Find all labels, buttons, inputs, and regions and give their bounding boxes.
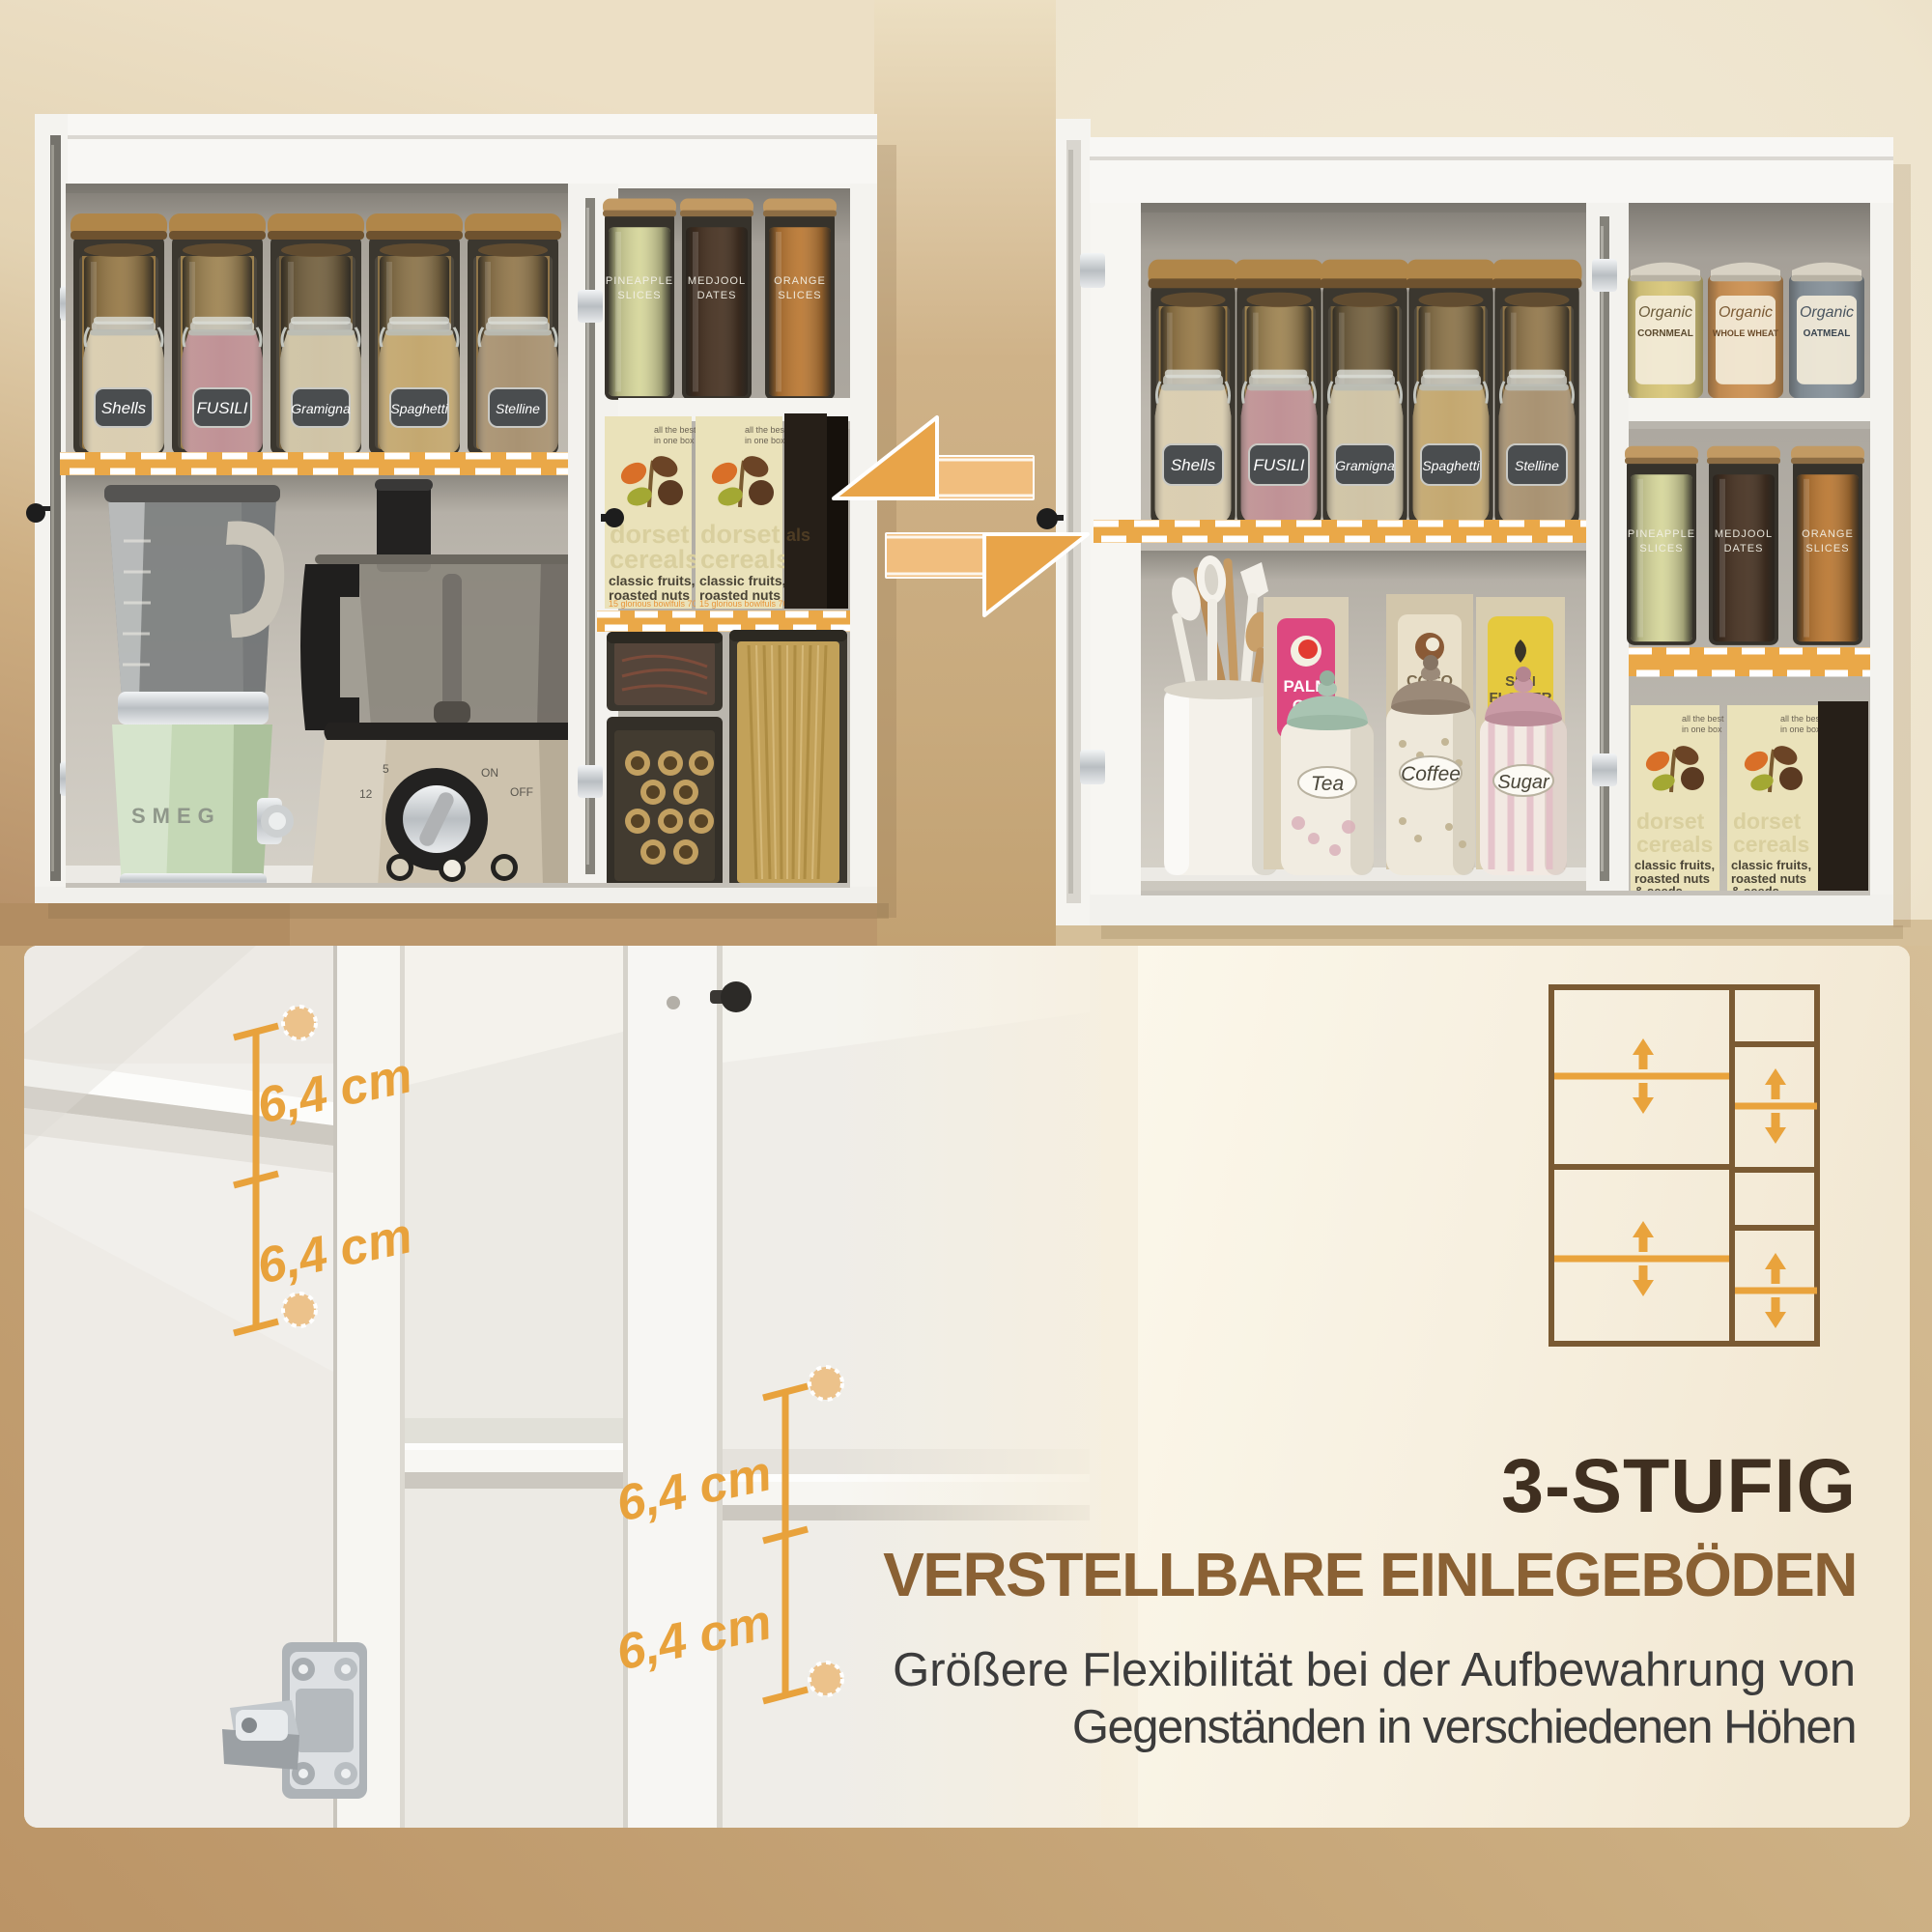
svg-text:in one box: in one box (1780, 724, 1821, 734)
svg-text:ORANGE: ORANGE (1802, 528, 1854, 540)
svg-text:VERSTELLBARE EINLEGEBÖDEN: VERSTELLBARE EINLEGEBÖDEN (883, 1540, 1857, 1609)
svg-text:classic fruits,: classic fruits, (1731, 858, 1811, 872)
svg-text:15 glorious bowlfuls 700g: 15 glorious bowlfuls 700g (609, 599, 707, 609)
svg-text:CORNMEAL: CORNMEAL (1637, 328, 1693, 339)
svg-text:3-STUFIG: 3-STUFIG (1501, 1442, 1857, 1528)
svg-text:all the best: all the best (745, 425, 787, 435)
svg-text:in one box: in one box (1682, 724, 1722, 734)
svg-text:classic fruits,: classic fruits, (609, 573, 696, 588)
svg-text:cereals: cereals (1636, 832, 1713, 857)
svg-text:5: 5 (383, 762, 389, 776)
svg-text:Gramigna: Gramigna (291, 401, 351, 416)
svg-text:ORANGE: ORANGE (774, 275, 826, 287)
svg-text:15 glorious bowlfuls 700g: 15 glorious bowlfuls 700g (699, 599, 798, 609)
svg-text:dorset: dorset (1636, 809, 1705, 834)
svg-text:Sugar: Sugar (1497, 772, 1550, 793)
svg-text:Größere Flexibilität bei der A: Größere Flexibilität bei der Aufbewahrun… (893, 1644, 1856, 1696)
svg-text:OFF: OFF (510, 785, 533, 799)
svg-text:Spaghetti: Spaghetti (1422, 458, 1480, 473)
svg-text:classic fruits,: classic fruits, (1634, 858, 1715, 872)
svg-text:Gramigna: Gramigna (1335, 458, 1395, 473)
svg-text:in one box: in one box (745, 436, 785, 445)
svg-text:PINEAPPLE: PINEAPPLE (1628, 528, 1695, 540)
svg-text:Stelline: Stelline (1515, 458, 1559, 473)
svg-text:PINEAPPLE: PINEAPPLE (606, 275, 673, 287)
svg-text:FUSILI: FUSILI (197, 399, 248, 417)
svg-text:ON: ON (481, 766, 498, 780)
svg-text:dorset: dorset (1733, 809, 1802, 834)
svg-text:SLICES: SLICES (1805, 543, 1849, 554)
svg-text:cereals: cereals (1733, 832, 1809, 857)
svg-text:Coffee: Coffee (1401, 763, 1461, 785)
svg-text:Organic: Organic (1800, 304, 1854, 321)
svg-text:in one box: in one box (654, 436, 695, 445)
svg-text:DATES: DATES (697, 290, 737, 301)
svg-text:als: als (786, 526, 810, 545)
svg-text:MEDJOOL: MEDJOOL (688, 275, 746, 287)
svg-text:all the best: all the best (654, 425, 696, 435)
svg-text:cereals: cereals (610, 545, 699, 574)
svg-text:12: 12 (359, 787, 373, 801)
svg-text:OATMEAL: OATMEAL (1804, 328, 1851, 339)
svg-text:SLICES: SLICES (778, 290, 821, 301)
svg-text:DATES: DATES (1724, 543, 1764, 554)
svg-text:cereals: cereals (700, 545, 790, 574)
svg-text:Spaghetti: Spaghetti (390, 401, 448, 416)
svg-text:all the best: all the best (1780, 714, 1823, 724)
svg-text:WHOLE WHEAT: WHOLE WHEAT (1713, 328, 1779, 338)
svg-text:Shells: Shells (101, 399, 147, 417)
svg-text:Stelline: Stelline (496, 401, 540, 416)
svg-text:SLICES: SLICES (1639, 543, 1683, 554)
svg-text:all the best: all the best (1682, 714, 1724, 724)
svg-text:Shells: Shells (1171, 456, 1216, 474)
svg-text:Organic: Organic (1638, 304, 1692, 321)
svg-text:MEDJOOL: MEDJOOL (1715, 528, 1773, 540)
svg-text:Gegenständen in verschiedenen: Gegenständen in verschiedenen Höhen (1072, 1701, 1856, 1753)
svg-text:FUSILI: FUSILI (1254, 456, 1305, 474)
svg-text:SMEG: SMEG (131, 804, 221, 828)
svg-text:SLICES: SLICES (617, 290, 661, 301)
svg-text:classic fruits,: classic fruits, (699, 573, 786, 588)
svg-text:Organic: Organic (1719, 304, 1773, 321)
svg-text:Tea: Tea (1311, 773, 1344, 795)
